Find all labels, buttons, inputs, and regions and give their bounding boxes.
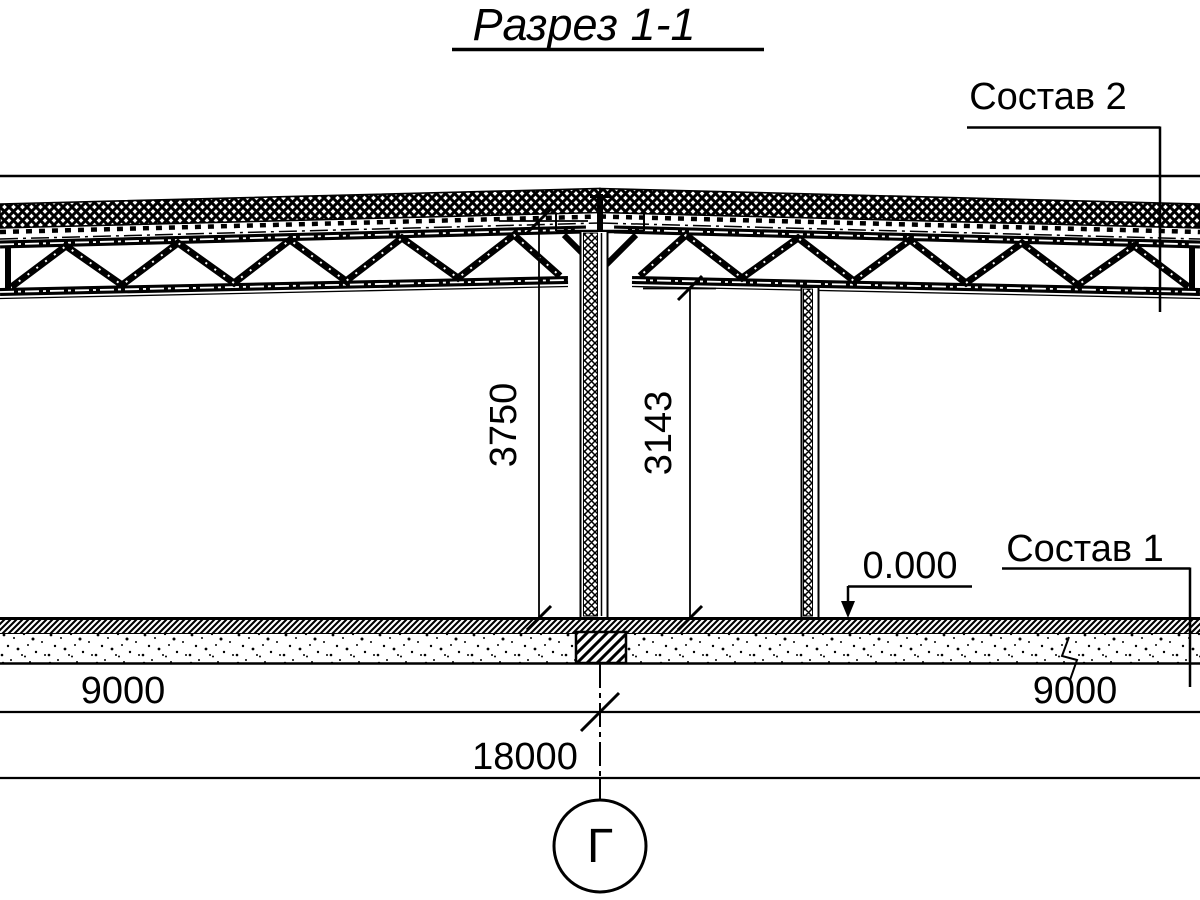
dim-9000-right-value: 9000	[1033, 670, 1118, 712]
composition-2-label: Состав 2	[969, 76, 1127, 118]
grid-axis-label: Г	[587, 820, 613, 873]
foundation-block	[576, 632, 626, 663]
dim-3143-value: 3143	[638, 391, 680, 476]
page-title: Разрез 1-1	[473, 0, 696, 50]
partition-wall-hatch	[804, 289, 813, 616]
partition-wall	[802, 287, 819, 618]
dim-3750-value: 3750	[483, 383, 525, 468]
dim-9000-left-value: 9000	[81, 670, 166, 712]
composition-1-label: Состав 1	[1006, 528, 1164, 570]
level-mark-value: 0.000	[862, 545, 957, 587]
center-column-hatch	[584, 233, 598, 616]
section-drawing: Разрез 1-1	[0, 0, 1200, 900]
dim-18000-value: 18000	[472, 736, 578, 778]
center-column	[581, 231, 608, 618]
